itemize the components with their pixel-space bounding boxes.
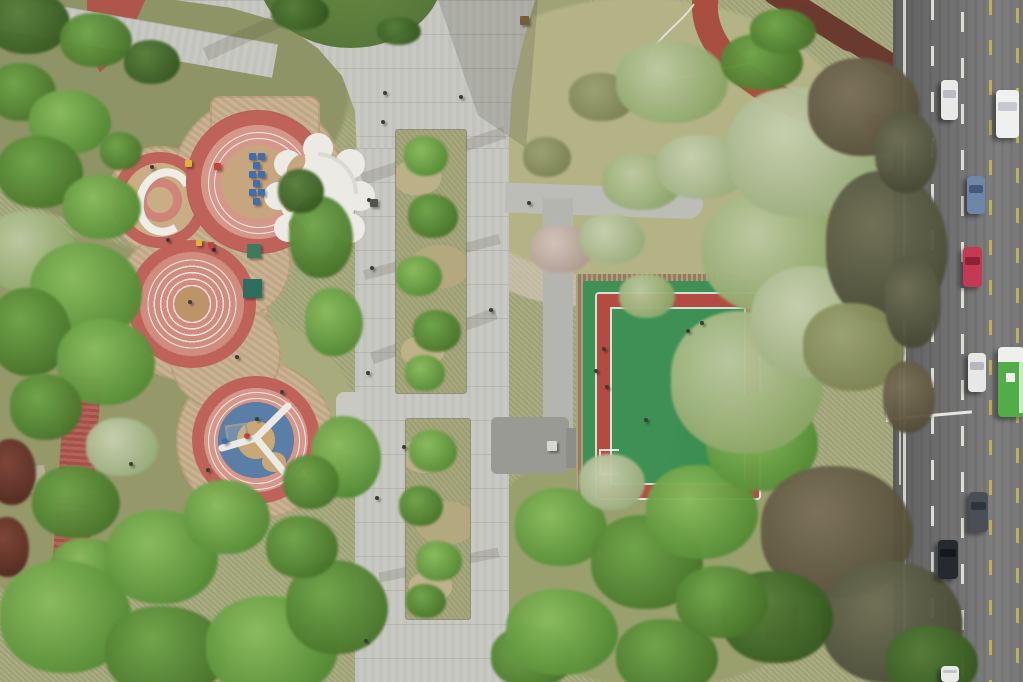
road-edge-line bbox=[903, 0, 906, 682]
path-to-court-vertical bbox=[543, 198, 573, 444]
guardrail bbox=[899, 340, 901, 485]
lane-dashed-line bbox=[931, 0, 934, 682]
street-light-pole bbox=[886, 408, 889, 422]
road bbox=[893, 0, 1023, 682]
aerial-park-photo bbox=[0, 0, 1023, 682]
lane-yellow-dashes bbox=[989, 0, 992, 682]
dark-paved-patch bbox=[491, 417, 569, 474]
white-canopy-structure bbox=[266, 120, 370, 272]
court-corner-lines bbox=[599, 449, 619, 475]
play-circle-labyrinth bbox=[128, 240, 256, 368]
planting-bed-upper bbox=[396, 130, 466, 393]
red-path-patch-bottom-right bbox=[766, 604, 798, 640]
white-hose-line bbox=[630, 0, 770, 100]
slides-on-mound bbox=[186, 370, 326, 510]
lane-dashed-line bbox=[961, 0, 964, 682]
court-red-border-band bbox=[597, 294, 759, 498]
lane-yellow-dashes bbox=[1016, 0, 1019, 682]
planting-bed-lower bbox=[406, 419, 470, 619]
